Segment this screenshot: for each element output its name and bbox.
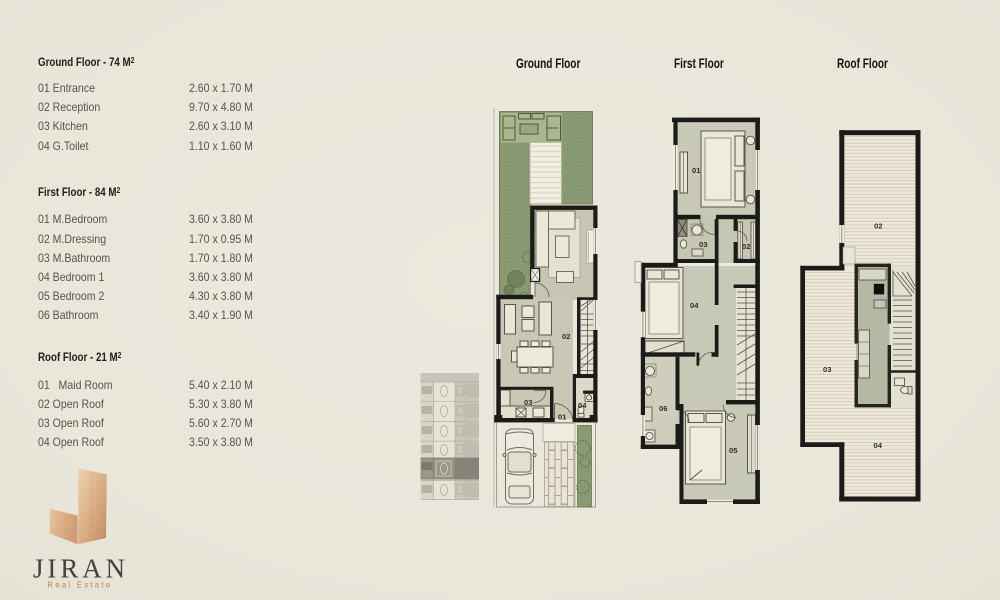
- svg-text:05: 05: [729, 446, 738, 455]
- svg-text:03: 03: [699, 240, 707, 249]
- svg-text:01: 01: [558, 413, 567, 422]
- svg-text:04: 04: [578, 401, 587, 410]
- svg-text:02: 02: [562, 332, 570, 341]
- svg-text:02: 02: [874, 222, 882, 231]
- svg-text:01: 01: [692, 166, 701, 175]
- svg-text:04: 04: [874, 441, 883, 450]
- svg-text:03: 03: [524, 398, 532, 407]
- svg-text:Real Estate: Real Estate: [47, 580, 112, 590]
- svg-text:03: 03: [823, 365, 831, 374]
- svg-text:02: 02: [742, 242, 750, 251]
- svg-text:06: 06: [659, 404, 667, 413]
- svg-text:04: 04: [690, 301, 699, 310]
